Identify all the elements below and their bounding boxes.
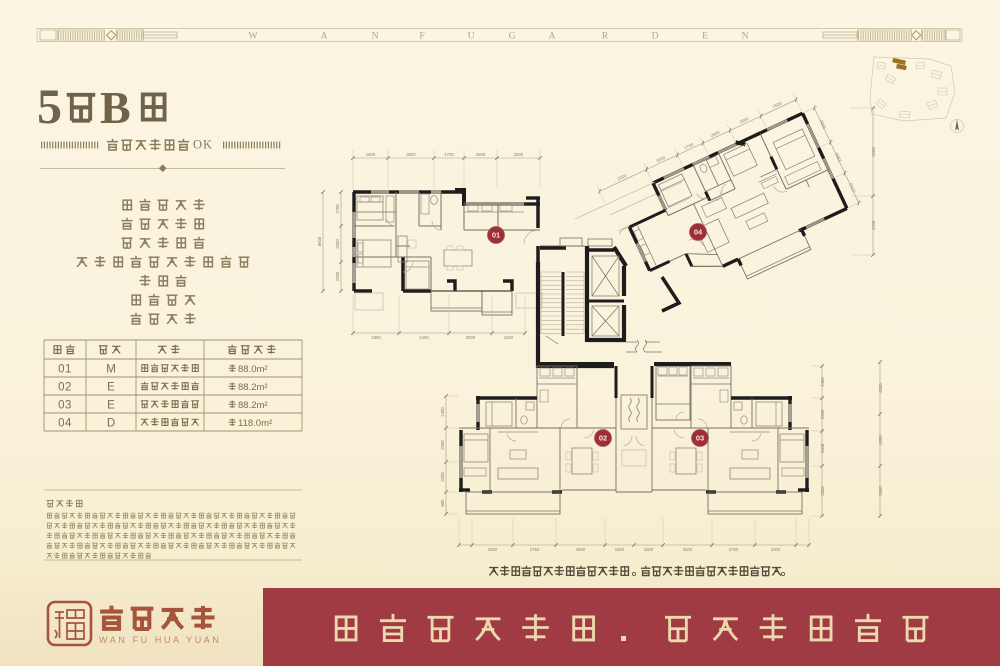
svg-text:5: 5 [37, 78, 62, 134]
svg-text:3300: 3300 [820, 486, 825, 496]
svg-text:800: 800 [440, 499, 445, 507]
svg-text:E: E [107, 382, 115, 394]
svg-text:2800: 2800 [466, 335, 476, 340]
svg-text:4000: 4000 [878, 435, 883, 445]
svg-text:D: D [107, 418, 115, 430]
svg-text:E: E [107, 400, 115, 412]
svg-text:02: 02 [58, 382, 72, 394]
svg-text:04: 04 [58, 418, 72, 430]
svg-text:3300: 3300 [371, 335, 381, 340]
svg-text:E: E [702, 32, 708, 42]
svg-text:8600: 8600 [317, 236, 322, 246]
svg-text:2400: 2400 [419, 335, 429, 340]
svg-text:2600: 2600 [710, 129, 721, 138]
svg-text:U: U [468, 32, 475, 42]
svg-text:2600: 2600 [820, 443, 825, 453]
svg-text:01: 01 [58, 364, 72, 376]
svg-text:1700: 1700 [683, 142, 694, 151]
svg-text:3300: 3300 [818, 119, 827, 130]
svg-text:2500: 2500 [335, 239, 340, 249]
svg-text:88.0m²: 88.0m² [238, 364, 268, 375]
svg-text:1800: 1800 [644, 547, 654, 552]
svg-text:3300: 3300 [771, 547, 781, 552]
svg-text:2000: 2000 [655, 155, 666, 164]
svg-text:N: N [742, 32, 749, 42]
svg-text:2500: 2500 [772, 100, 783, 109]
svg-text:3600: 3600 [576, 547, 586, 552]
svg-text:03: 03 [696, 434, 704, 443]
svg-text:03: 03 [58, 400, 72, 412]
svg-text:2600: 2600 [476, 152, 486, 157]
svg-text:R: R [602, 32, 609, 42]
svg-text:2750: 2750 [530, 547, 540, 552]
svg-text:W: W [249, 32, 258, 42]
svg-text:1600: 1600 [504, 335, 514, 340]
svg-text:G: G [509, 32, 516, 42]
svg-text:4100: 4100 [871, 220, 876, 230]
svg-text:88.2m²: 88.2m² [238, 382, 268, 393]
svg-text:3800: 3800 [406, 152, 416, 157]
svg-text:3300: 3300 [488, 547, 498, 552]
svg-text:A: A [549, 32, 556, 42]
svg-text:3300: 3300 [739, 116, 750, 125]
svg-text:3900: 3900 [878, 486, 883, 496]
svg-text:4000: 4000 [878, 383, 883, 393]
svg-text:WAN FU HUA YUAN: WAN FU HUA YUAN [99, 635, 222, 645]
svg-text:04: 04 [694, 228, 703, 237]
svg-text:88.2m²: 88.2m² [238, 400, 268, 411]
svg-text:2900: 2900 [440, 440, 445, 450]
svg-text:1800: 1800 [615, 547, 625, 552]
svg-text:1700: 1700 [444, 152, 454, 157]
svg-text:118.0m²: 118.0m² [238, 418, 272, 429]
svg-text:6200: 6200 [871, 147, 876, 157]
svg-text:2500: 2500 [514, 152, 524, 157]
svg-text:N: N [372, 32, 379, 42]
svg-text:M: M [106, 364, 116, 376]
svg-text:2400: 2400 [820, 377, 825, 387]
svg-text:OK: OK [193, 138, 213, 152]
svg-text:B: B [100, 82, 131, 133]
svg-text:A: A [321, 32, 328, 42]
svg-text:2200: 2200 [616, 173, 627, 182]
svg-text:2700: 2700 [335, 204, 340, 214]
svg-text:2400: 2400 [440, 407, 445, 417]
svg-text:D: D [652, 32, 659, 42]
svg-text:2700: 2700 [848, 182, 857, 193]
svg-text:02: 02 [599, 434, 607, 443]
svg-text:F: F [419, 32, 424, 42]
svg-text:3600: 3600 [683, 547, 693, 552]
svg-text:2900: 2900 [834, 151, 843, 162]
svg-text:1600: 1600 [366, 152, 376, 157]
svg-text:2000: 2000 [335, 271, 340, 281]
svg-text:2500: 2500 [820, 409, 825, 419]
svg-text:2000: 2000 [440, 472, 445, 482]
svg-text:2750: 2750 [729, 547, 739, 552]
svg-text:01: 01 [492, 231, 500, 240]
